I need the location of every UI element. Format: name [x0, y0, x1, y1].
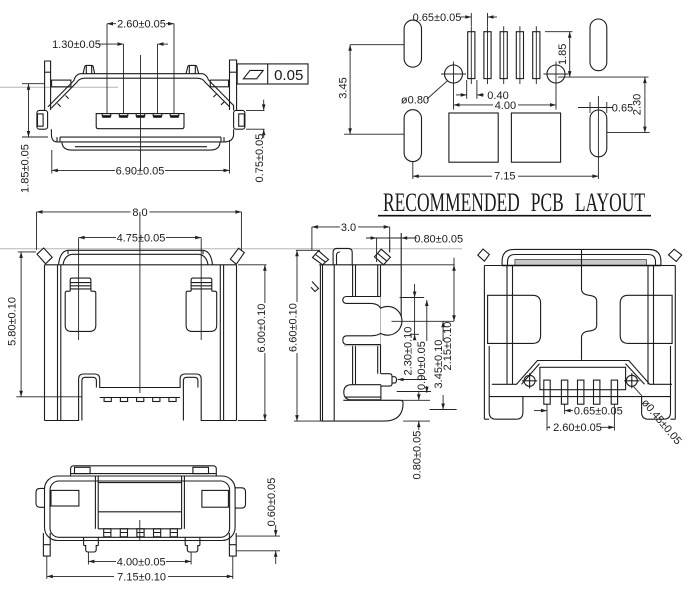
svg-text:2.30±0.10: 2.30±0.10: [403, 327, 415, 376]
svg-text:3.0: 3.0: [341, 222, 356, 234]
svg-text:4.75±0.05: 4.75±0.05: [117, 233, 166, 245]
svg-text:0.90±0.05: 0.90±0.05: [416, 341, 428, 390]
svg-text:0.65±0.05: 0.65±0.05: [413, 12, 462, 24]
svg-text:2.15±0.10: 2.15±0.10: [442, 322, 454, 371]
svg-text:5.80±0.10: 5.80±0.10: [7, 297, 19, 346]
svg-text:3.45: 3.45: [338, 77, 350, 98]
svg-text:RECOMMENDED PCB LAYOUT: RECOMMENDED PCB LAYOUT: [383, 188, 645, 217]
svg-text:4.00±0.05: 4.00±0.05: [117, 556, 166, 568]
svg-text:1.85: 1.85: [557, 44, 569, 65]
svg-text:4.00: 4.00: [495, 100, 516, 112]
svg-text:6.60±0.10: 6.60±0.10: [288, 303, 300, 352]
svg-text:1.85±0.05: 1.85±0.05: [20, 144, 32, 193]
svg-text:2.60±0.05: 2.60±0.05: [553, 422, 602, 434]
svg-text:0.75±0.05: 0.75±0.05: [254, 134, 266, 183]
svg-text:0.80±0.05: 0.80±0.05: [414, 234, 463, 246]
svg-text:0.05: 0.05: [274, 67, 303, 84]
svg-text:0.65±0.05: 0.65±0.05: [574, 406, 623, 418]
svg-text:7.15±0.10: 7.15±0.10: [117, 571, 166, 583]
svg-text:1.30±0.05: 1.30±0.05: [52, 39, 101, 51]
svg-text:6.00±0.10: 6.00±0.10: [256, 304, 268, 353]
svg-text:0.65: 0.65: [612, 103, 633, 115]
svg-text:0.60±0.05: 0.60±0.05: [266, 478, 278, 527]
svg-text:ø0.80: ø0.80: [401, 95, 429, 107]
svg-text:2.30: 2.30: [632, 94, 644, 115]
svg-text:2.60±0.05: 2.60±0.05: [117, 19, 166, 31]
svg-text:7.15: 7.15: [494, 171, 515, 183]
svg-text:8.0: 8.0: [132, 207, 147, 219]
svg-text:0.80±0.05: 0.80±0.05: [412, 431, 424, 480]
svg-text:6.90±0.05: 6.90±0.05: [116, 166, 165, 178]
